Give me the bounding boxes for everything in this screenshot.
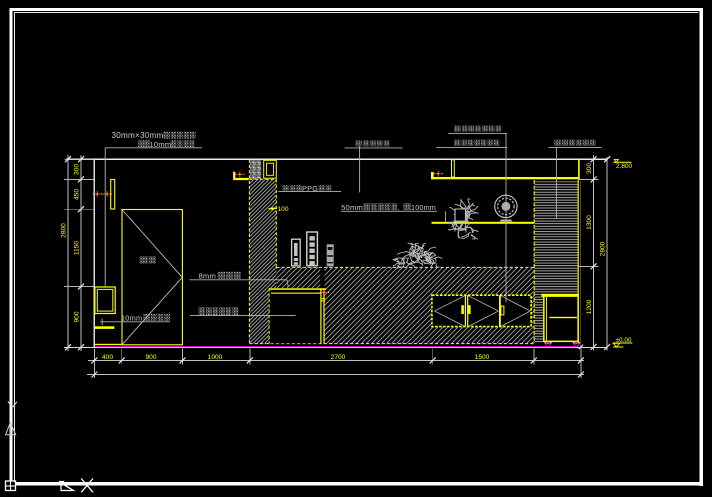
svg-text:300: 300 (74, 164, 81, 175)
svg-text:2700: 2700 (331, 354, 346, 361)
svg-text:450: 450 (74, 189, 81, 200)
svg-text:100mm: 100mm (411, 203, 436, 212)
svg-text:8mm: 8mm (199, 272, 216, 281)
svg-text:1000: 1000 (208, 354, 223, 361)
svg-text:30mm×30mm: 30mm×30mm (112, 131, 164, 140)
svg-text:1150: 1150 (74, 241, 81, 256)
svg-text:2800: 2800 (600, 241, 607, 256)
svg-text:50mm: 50mm (341, 203, 363, 212)
svg-text:900: 900 (74, 311, 81, 322)
svg-text:1300: 1300 (586, 215, 593, 230)
svg-text:300: 300 (586, 163, 593, 174)
svg-text:100: 100 (278, 206, 289, 213)
svg-text:10mm: 10mm (121, 314, 142, 323)
svg-text:400: 400 (102, 354, 113, 361)
svg-text:2.800: 2.800 (616, 163, 632, 170)
svg-text:2800: 2800 (61, 223, 68, 238)
svg-text:1500: 1500 (475, 354, 490, 361)
svg-text:1200: 1200 (586, 299, 593, 314)
svg-text:900: 900 (145, 354, 156, 361)
